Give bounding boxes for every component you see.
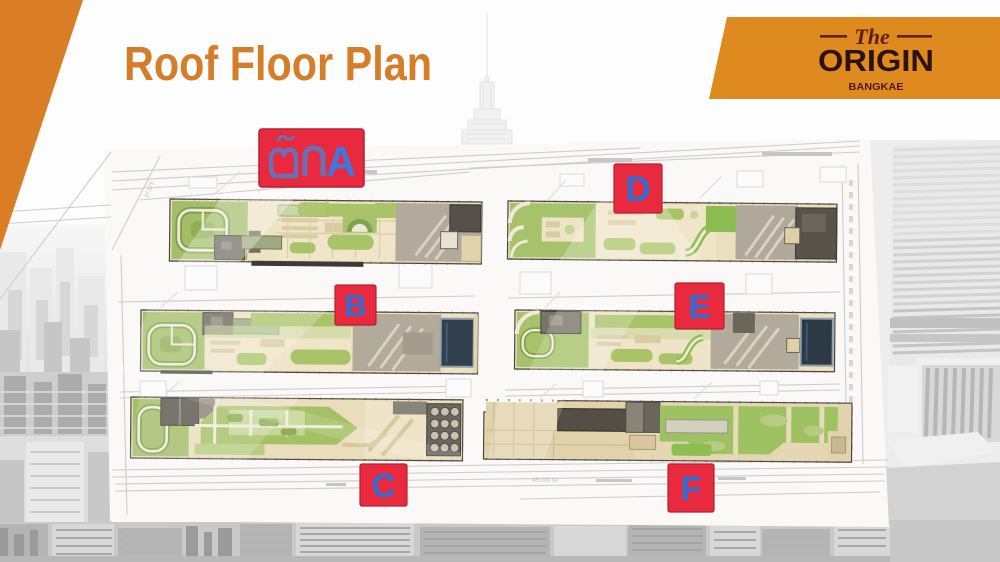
- svg-text:45.000 M.: 45.000 M.: [532, 478, 559, 484]
- svg-text:Roof Floor Plan: Roof Floor Plan: [124, 38, 432, 91]
- svg-text:D: D: [625, 170, 650, 209]
- svg-text:ORIGIN: ORIGIN: [818, 43, 934, 78]
- svg-text:E: E: [688, 288, 710, 325]
- svg-text:A: A: [326, 138, 356, 185]
- svg-text:BANGKAE: BANGKAE: [849, 81, 904, 93]
- svg-text:B: B: [344, 288, 366, 323]
- svg-text:C: C: [372, 467, 396, 504]
- svg-text:F: F: [681, 470, 702, 508]
